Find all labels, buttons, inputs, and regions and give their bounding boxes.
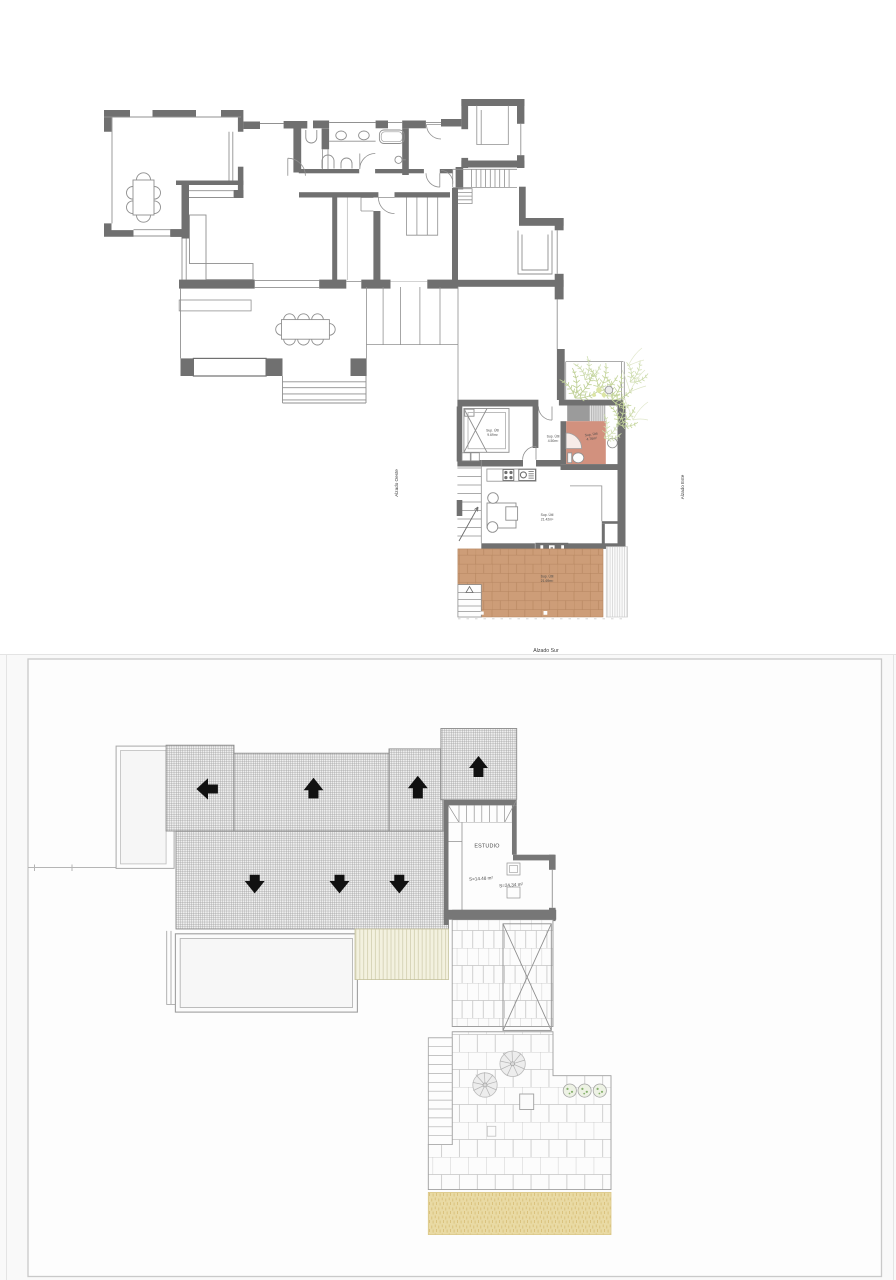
svg-text:4.50m²: 4.50m² bbox=[548, 439, 559, 443]
svg-text:21.69m²: 21.69m² bbox=[541, 579, 554, 583]
svg-text:Alzado Oeste: Alzado Oeste bbox=[394, 469, 399, 497]
svg-text:9.69m²: 9.69m² bbox=[487, 433, 498, 437]
svg-text:Sup. Útil: Sup. Útil bbox=[547, 434, 560, 439]
svg-text:Sup. Útil: Sup. Útil bbox=[541, 512, 554, 517]
svg-text:Sup. Útil: Sup. Útil bbox=[486, 428, 499, 433]
svg-text:21.42m²: 21.42m² bbox=[541, 517, 554, 521]
svg-text:Sup. Útil: Sup. Útil bbox=[541, 574, 554, 579]
svg-text:ESTUDIO: ESTUDIO bbox=[474, 844, 499, 850]
svg-text:Alzado Sur: Alzado Sur bbox=[533, 648, 559, 654]
svg-text:Alzado Este: Alzado Este bbox=[680, 474, 685, 499]
